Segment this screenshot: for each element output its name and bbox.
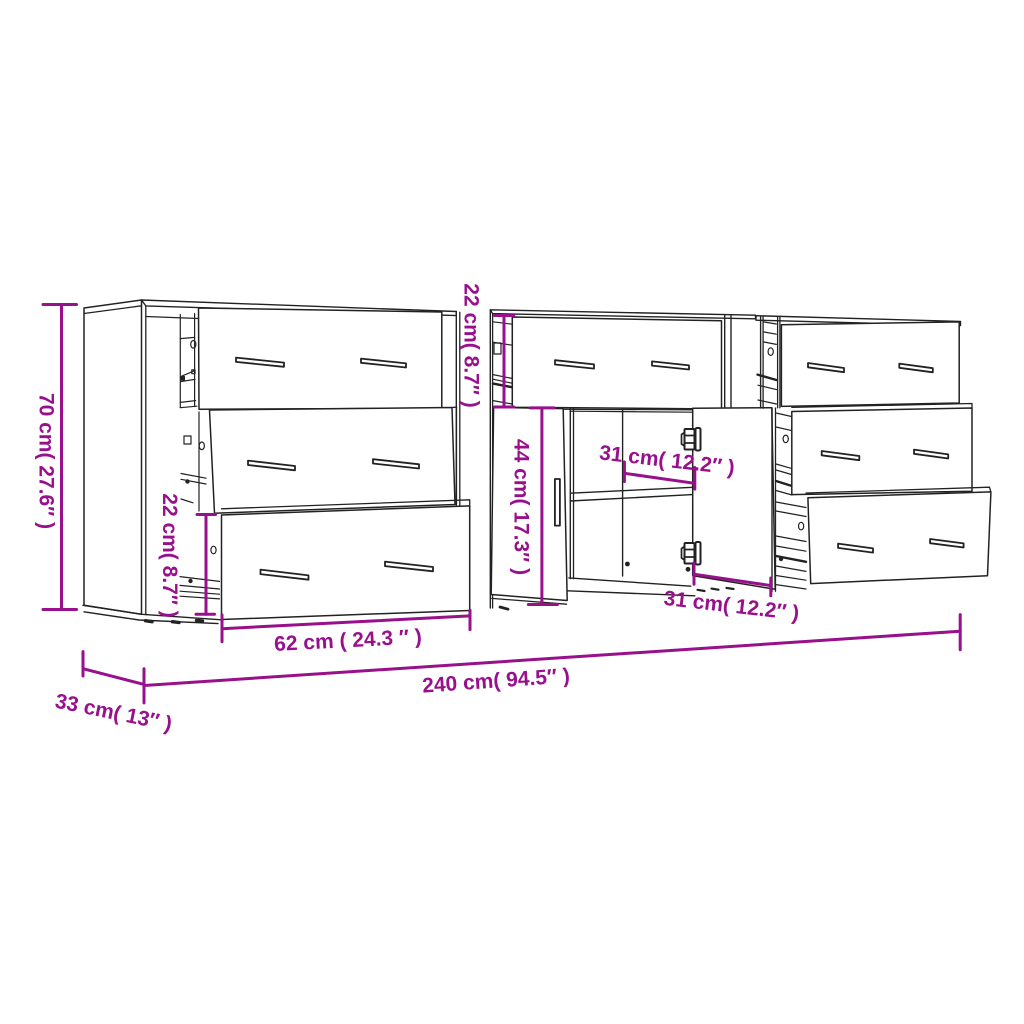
svg-text:22 cm( 8.7″ ): 22 cm( 8.7″ )	[158, 493, 181, 617]
svg-text:44 cm( 17.3″ ): 44 cm( 17.3″ )	[510, 439, 533, 575]
svg-text:22 cm( 8.7″ ): 22 cm( 8.7″ )	[460, 283, 483, 407]
svg-text:62 cm ( 24.3 ″ ): 62 cm ( 24.3 ″ )	[274, 625, 423, 656]
svg-text:240 cm( 94.5″ ): 240 cm( 94.5″ )	[421, 664, 570, 697]
svg-text:33 cm( 13″ ): 33 cm( 13″ )	[53, 690, 174, 736]
svg-text:31 cm( 12.2″ ): 31 cm( 12.2″ )	[663, 587, 801, 625]
svg-text:70 cm( 27.6″ ): 70 cm( 27.6″ )	[35, 393, 58, 529]
